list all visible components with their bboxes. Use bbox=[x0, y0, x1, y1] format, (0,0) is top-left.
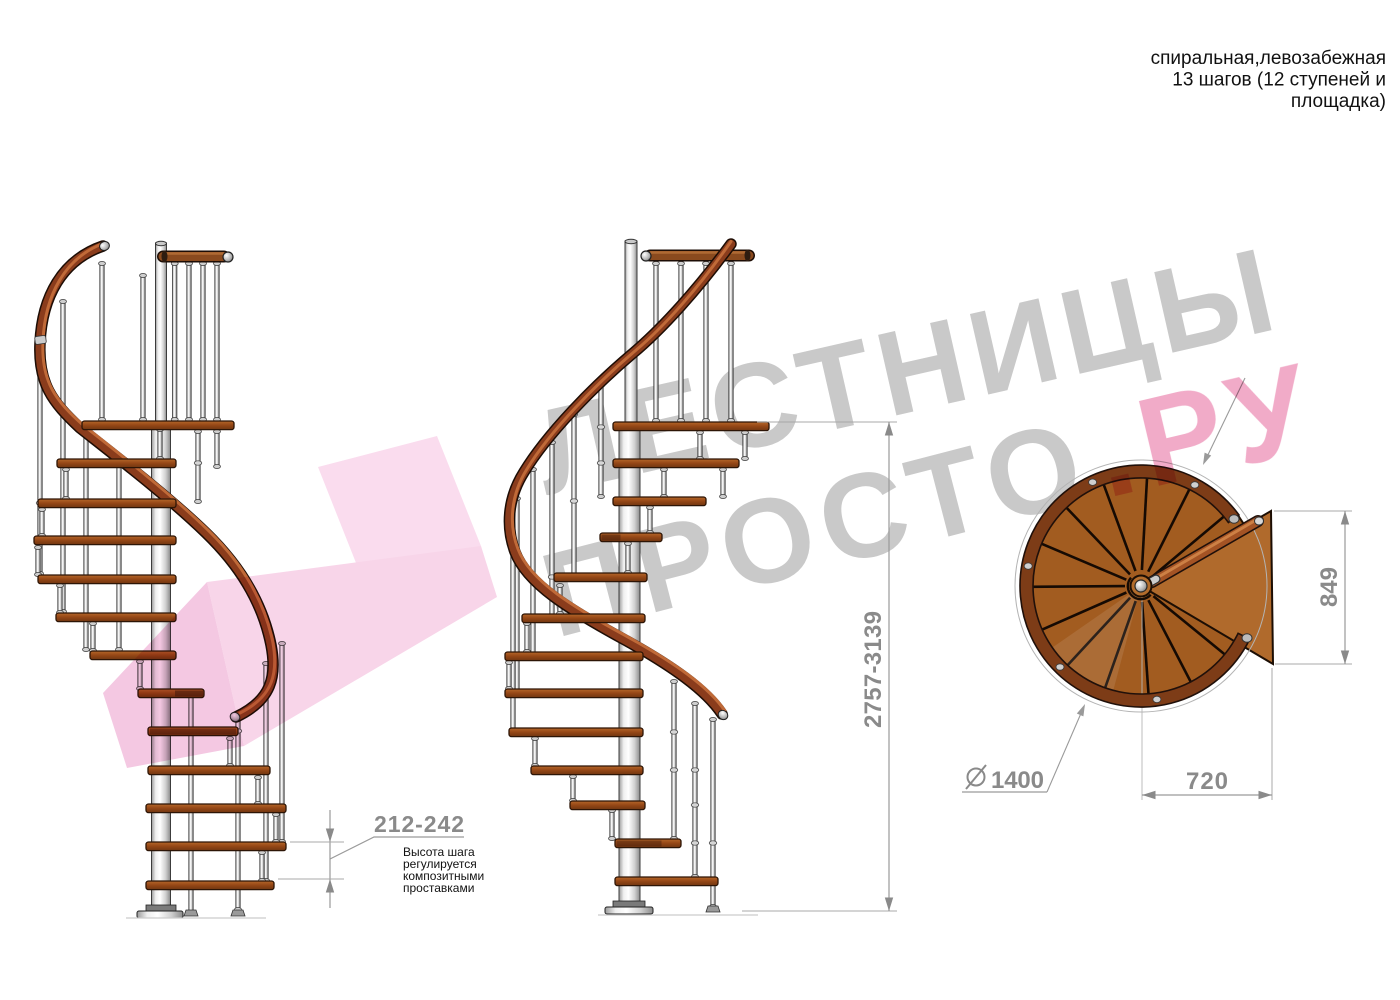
svg-text:13 шагов (12 ступеней и: 13 шагов (12 ступеней и bbox=[1172, 70, 1386, 91]
svg-text:849: 849 bbox=[1316, 567, 1343, 607]
svg-text:2757-3139: 2757-3139 bbox=[860, 611, 887, 728]
svg-text:212-242: 212-242 bbox=[374, 811, 464, 837]
svg-text:720: 720 bbox=[1186, 768, 1228, 795]
svg-text:площадка): площадка) bbox=[1291, 91, 1386, 112]
svg-text:проставками: проставками bbox=[403, 881, 474, 895]
svg-text:спиральная,левозабежная: спиральная,левозабежная bbox=[1151, 48, 1386, 69]
svg-text:1400: 1400 bbox=[991, 767, 1044, 794]
